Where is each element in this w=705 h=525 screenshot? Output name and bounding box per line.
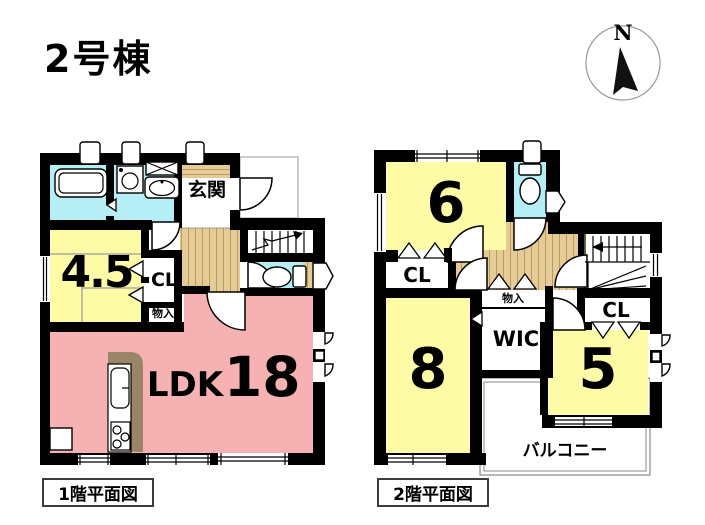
vanity-sink-icon — [145, 177, 179, 198]
toilet-icon-2f — [519, 164, 541, 204]
wic-label: WIC — [487, 329, 545, 350]
tatami-size-label: 4.5 — [50, 251, 143, 295]
floorplan-sheet: 2号棟 N 玄関 CL 物入 4.5 LDK 18 1階平面図 6 CL 8 物… — [0, 0, 705, 525]
refrigerator-space — [50, 428, 72, 450]
ldk-size-label: 18 — [224, 350, 294, 405]
closet-label-1f: CL — [146, 271, 182, 290]
bathtub-icon — [55, 169, 107, 197]
toilet-icon-1f — [263, 266, 306, 287]
bedroom8-size-label: 8 — [402, 342, 454, 398]
window-ldk-bottom-1 — [78, 455, 110, 465]
window-bedroom8-bottom — [388, 455, 446, 465]
floor1-caption: 1階平面図 — [42, 478, 154, 507]
vent-icon-2f — [523, 141, 541, 163]
compass-label: N — [607, 22, 639, 43]
ldk-room-upper — [184, 292, 313, 334]
bedroom5-size-label: 5 — [572, 342, 624, 398]
storage-label-1f: 物入 — [144, 308, 182, 319]
laundry-pan-icon — [146, 162, 178, 175]
entrance-label: 玄関 — [182, 181, 232, 200]
window-tatami-left — [40, 256, 50, 302]
floor2-caption: 2階平面図 — [377, 478, 489, 507]
kitchen-counter — [108, 352, 143, 452]
hall-floor-1f — [180, 228, 245, 292]
page-title: 2号棟 — [44, 40, 152, 78]
window-ldk-right-casements — [313, 332, 333, 382]
balcony-label: バルコニー — [502, 443, 628, 460]
window-bedroom5-right-casements — [650, 334, 670, 382]
ldk-label: LDK — [146, 368, 224, 402]
toilet-window-1f — [313, 263, 333, 289]
front-door-arc — [240, 178, 272, 210]
window-stairs-right — [650, 253, 662, 277]
washing-machine-icon — [117, 166, 143, 193]
closet-a-label-2f: CL — [392, 265, 442, 285]
storage-label-2f: 物入 — [487, 293, 539, 304]
stairs-1f — [252, 231, 304, 253]
window-ldk-bottom-3 — [218, 453, 288, 465]
toilet-window-2f — [546, 191, 565, 213]
window-ldk-bottom-2 — [146, 455, 210, 465]
washroom-door-arc — [152, 222, 180, 250]
closet-b-label-2f: CL — [591, 300, 641, 320]
window-bedroom6-left — [374, 193, 386, 252]
window-bedroom6-top — [415, 150, 480, 162]
stairs-2f — [585, 236, 650, 290]
toilet-door-opening-1f — [240, 262, 248, 288]
bedroom6-size-label: 6 — [420, 176, 472, 232]
